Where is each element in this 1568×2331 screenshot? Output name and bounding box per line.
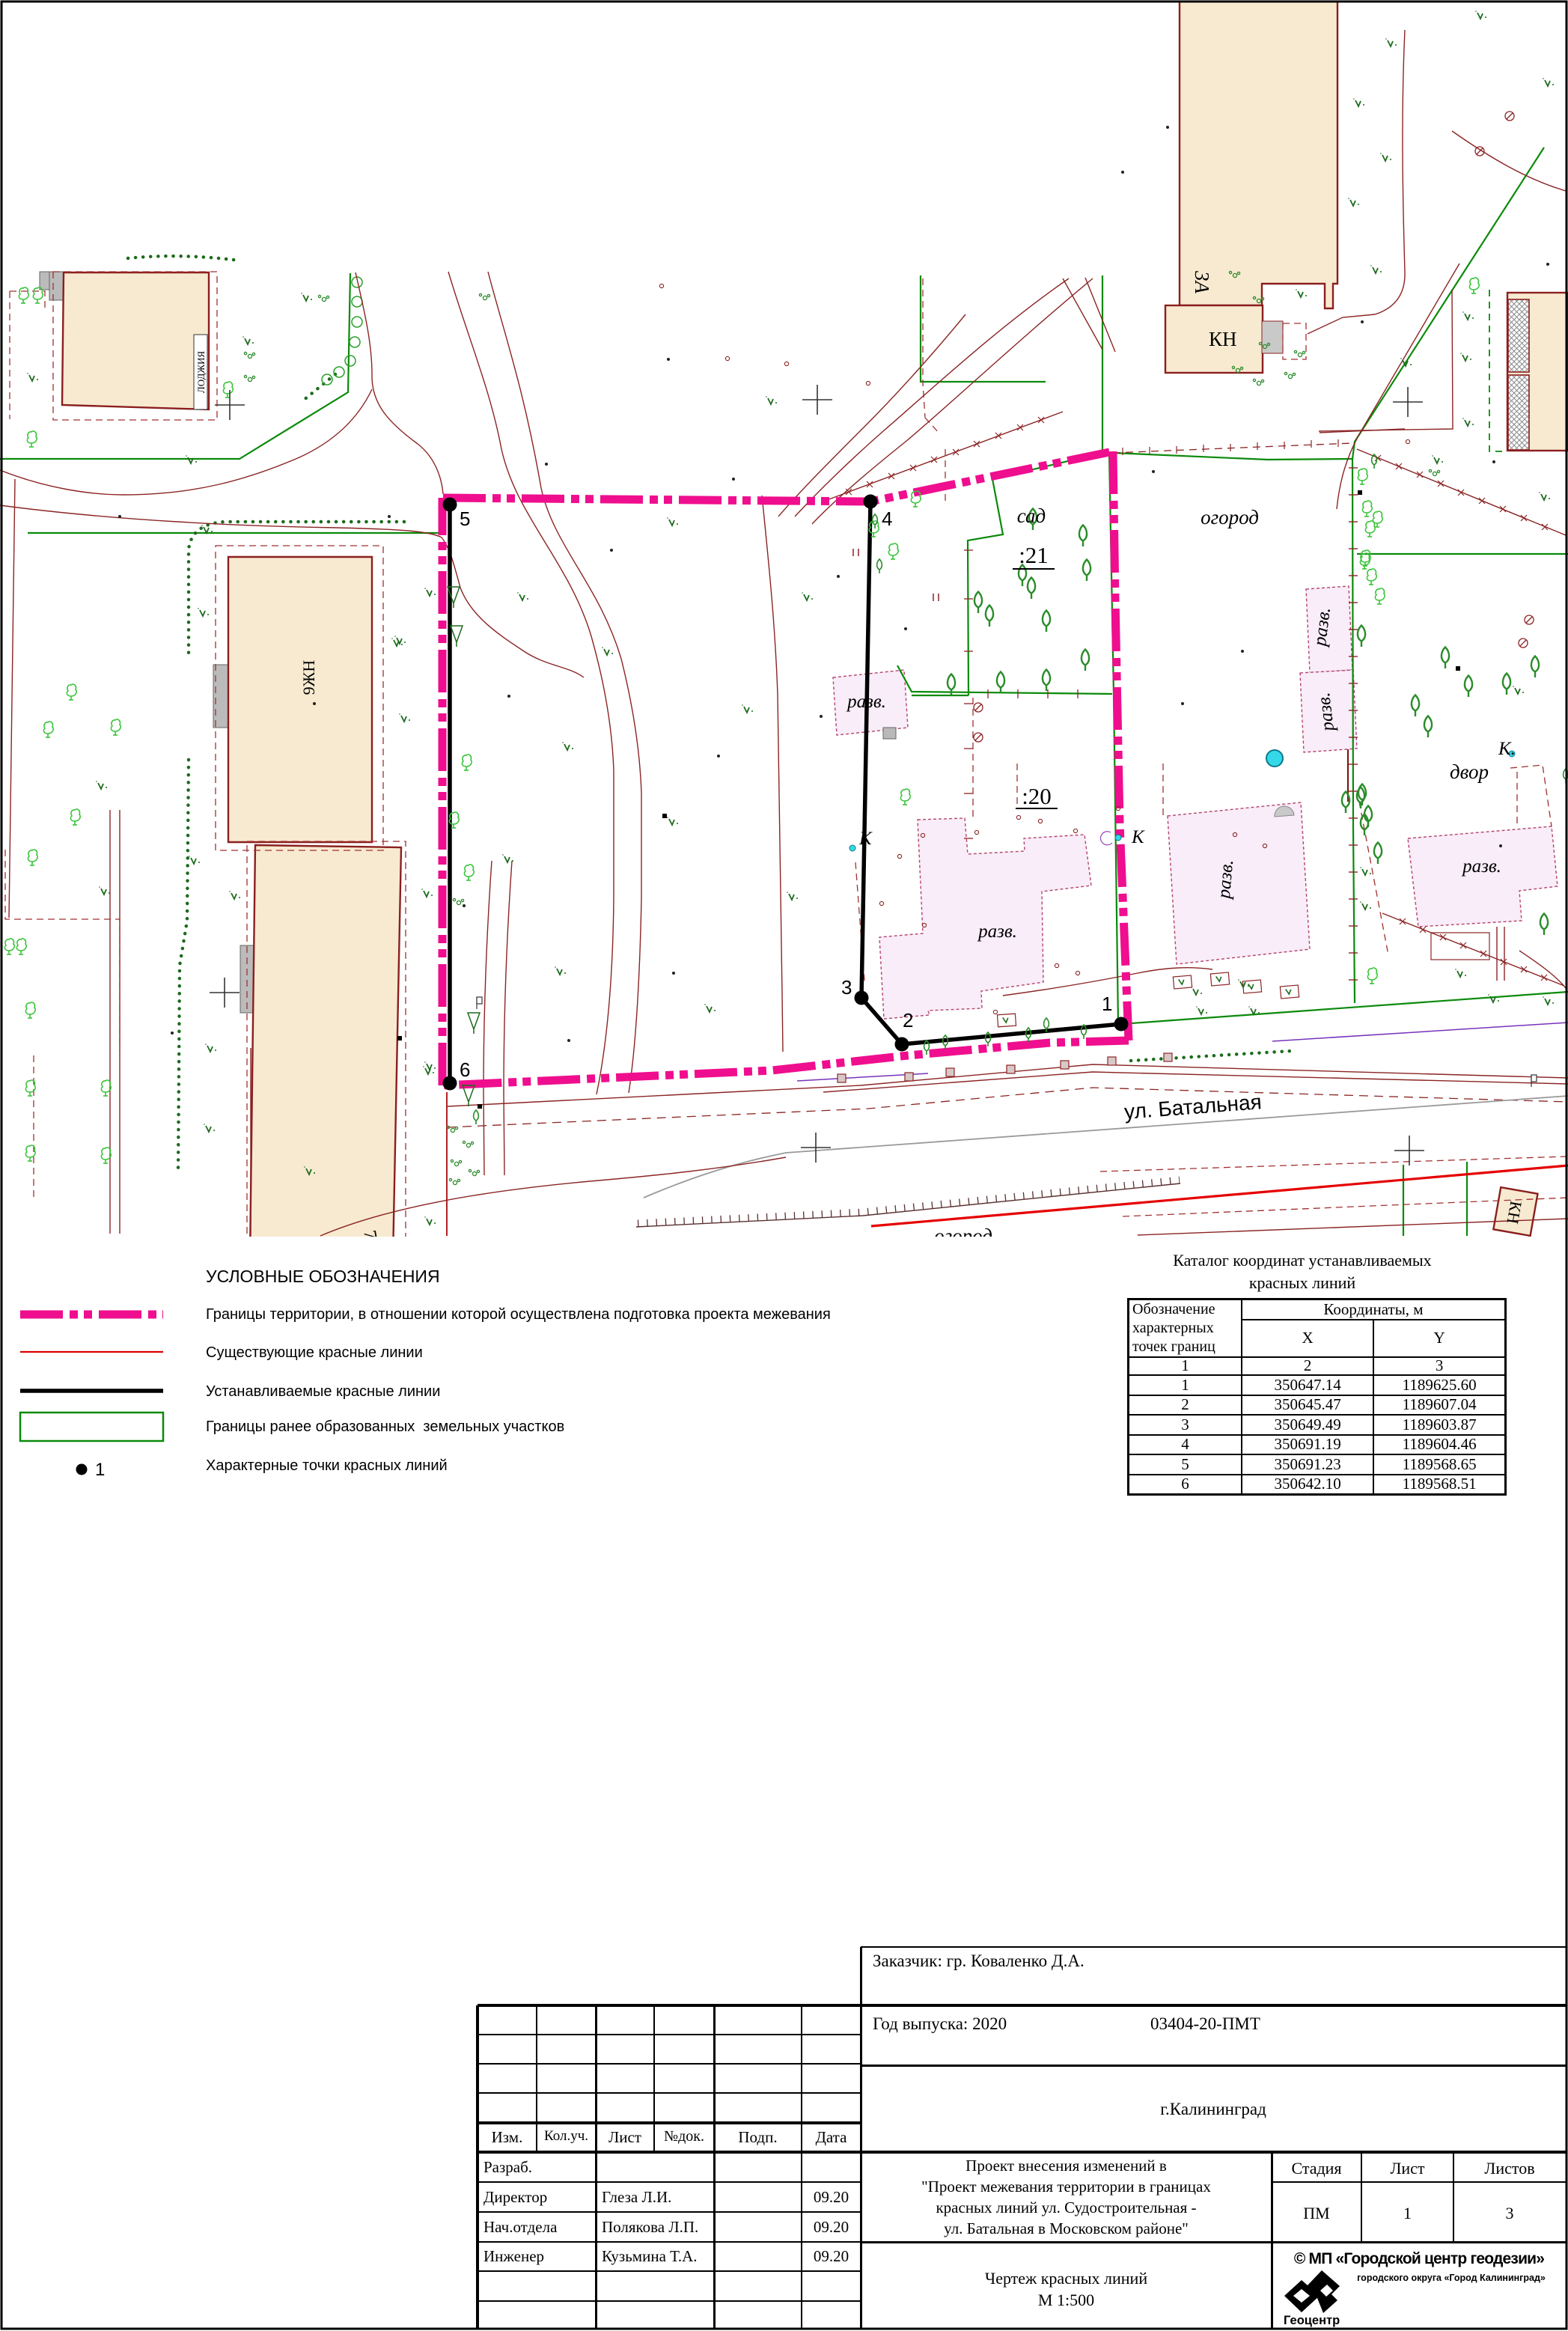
svg-text:разв.: разв. <box>1461 856 1501 877</box>
svg-text:5: 5 <box>460 508 470 530</box>
svg-text:К.: К. <box>1498 739 1516 759</box>
svg-text:К: К <box>858 829 873 849</box>
svg-text:9ЖН: 9ЖН <box>299 660 318 695</box>
svg-text:огород: огород <box>934 1225 992 1247</box>
svg-text:разв.: разв. <box>977 921 1017 942</box>
svg-text:двор: двор <box>1450 761 1489 783</box>
svg-text:сад: сад <box>1017 505 1046 527</box>
svg-text:1: 1 <box>95 1460 105 1480</box>
svg-text:3: 3 <box>841 976 852 999</box>
svg-text:разв.: разв. <box>846 692 886 712</box>
svg-text:разв.: разв. <box>1214 859 1238 901</box>
svg-text:ЛОДЖИЯ: ЛОДЖИЯ <box>195 351 207 393</box>
svg-text:2: 2 <box>903 1009 913 1032</box>
svg-text::20: :20 <box>1022 783 1052 809</box>
svg-text:огород: огород <box>1201 506 1259 528</box>
svg-text:3А: 3А <box>1191 270 1213 294</box>
svg-text:ул. Батальная: ул. Батальная <box>1123 1090 1263 1124</box>
svg-text:1: 1 <box>1102 993 1112 1015</box>
svg-text:4: 4 <box>882 508 892 530</box>
svg-text::21: :21 <box>1019 542 1049 568</box>
svg-text:К: К <box>1131 827 1145 847</box>
svg-text:6: 6 <box>460 1058 470 1081</box>
svg-text:КН: КН <box>1504 1200 1526 1226</box>
svg-text:КН: КН <box>1209 328 1237 350</box>
